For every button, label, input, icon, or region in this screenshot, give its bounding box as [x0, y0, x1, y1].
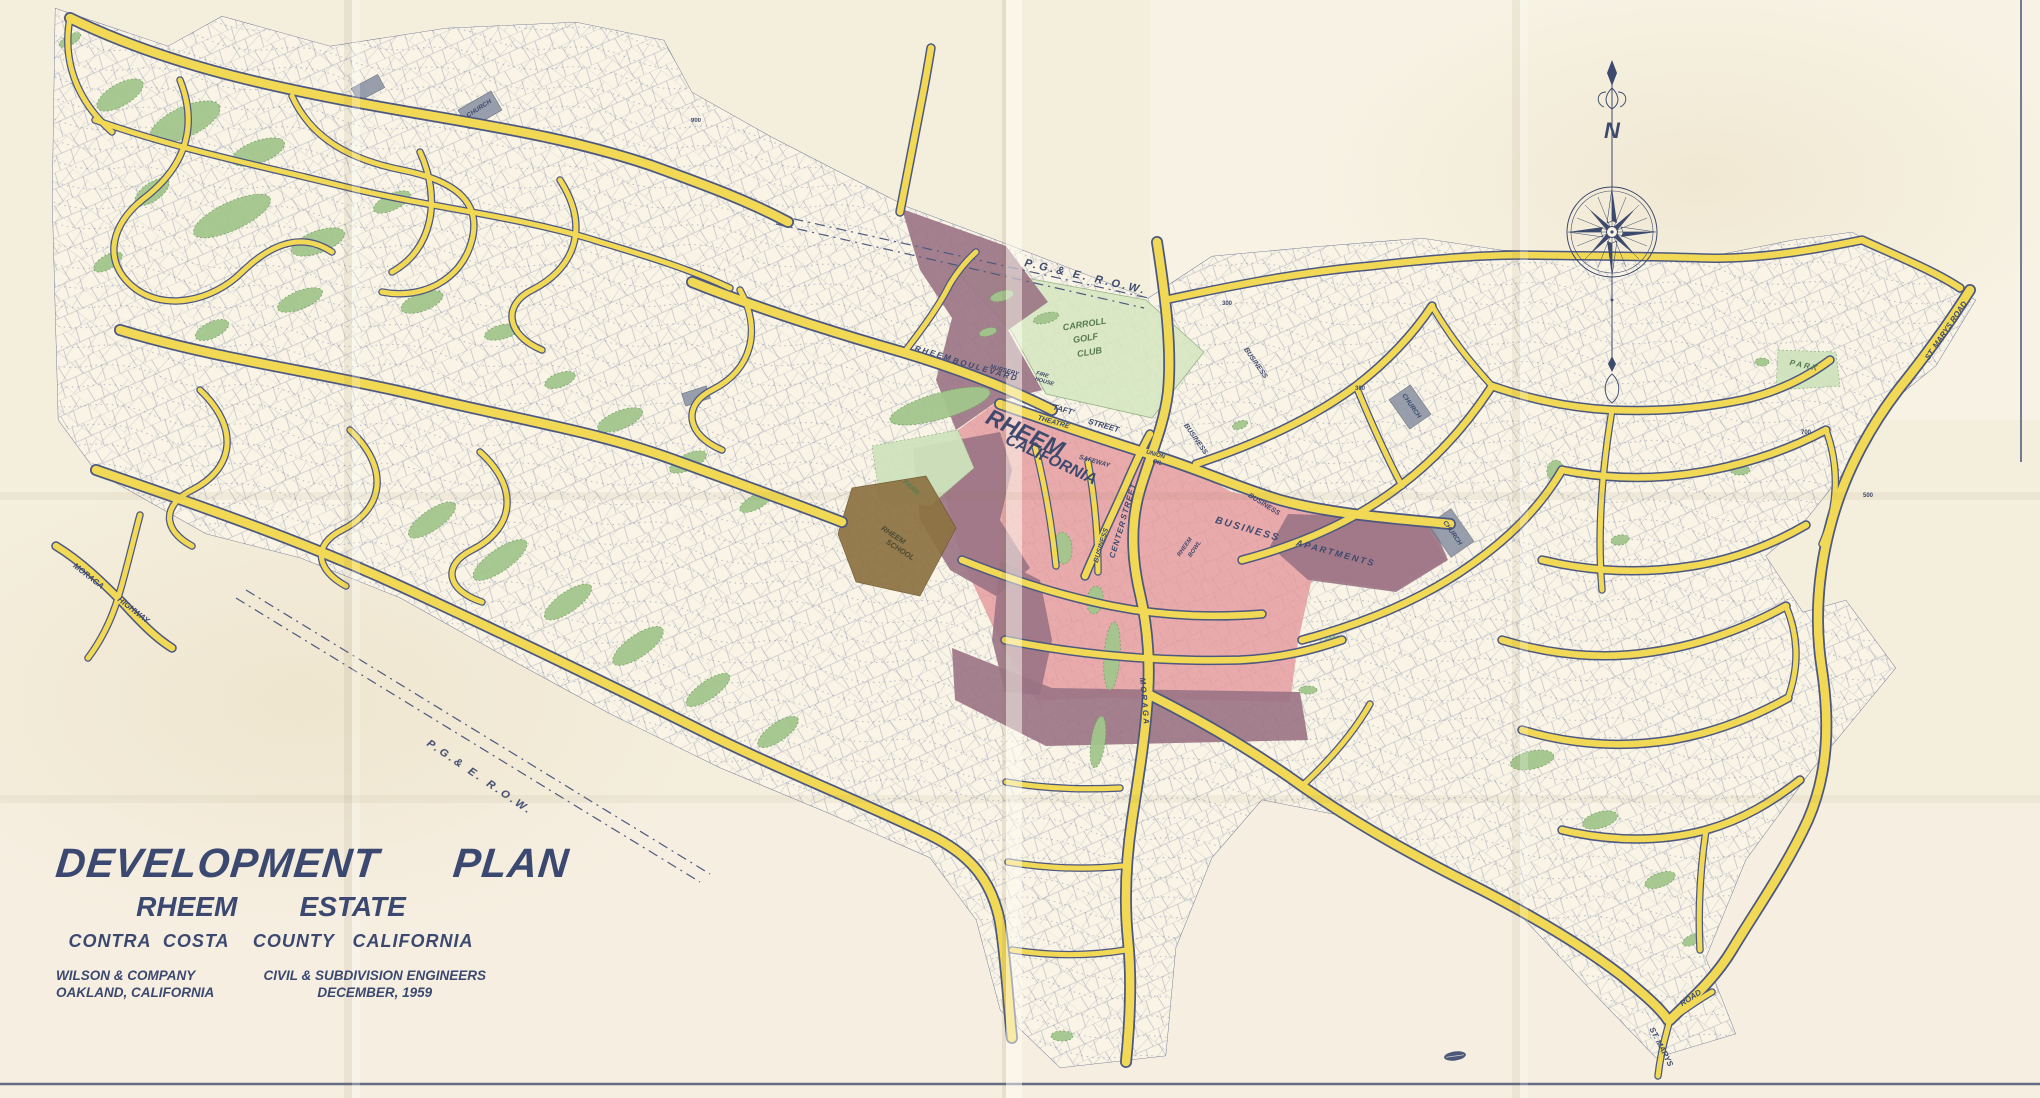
firm-role: CIVIL & SUBDIVISION ENGINEERS	[263, 968, 486, 985]
title-block: DEVELOPMENT PLAN RHEEM ESTATE CONTRA COS…	[56, 840, 486, 1002]
firm-city: OAKLAND, CALIFORNIA	[56, 985, 214, 1002]
map-label: 900	[691, 118, 702, 124]
firm-identity: WILSON & COMPANY OAKLAND, CALIFORNIA	[56, 968, 214, 1002]
map-location: CONTRA COSTA COUNTY CALIFORNIA	[56, 931, 486, 952]
map-label: 500	[1863, 493, 1874, 499]
firm-name: WILSON & COMPANY	[56, 968, 214, 985]
map-date: DECEMBER, 1959	[263, 985, 486, 1002]
firm-role-date: CIVIL & SUBDIVISION ENGINEERS DECEMBER, …	[263, 968, 486, 1002]
compass-north-label: N	[1604, 118, 1621, 143]
map-label: 700	[1801, 430, 1812, 436]
map-label: 300	[1222, 301, 1233, 307]
map-subtitle: RHEEM ESTATE	[56, 891, 486, 923]
map-title: DEVELOPMENT PLAN	[54, 840, 489, 887]
map-sheet: N P.G.& E. R.O.W.P.G.& E. R.O.W.CARROLLG…	[0, 0, 2040, 1098]
map-label: 300	[1355, 386, 1366, 392]
